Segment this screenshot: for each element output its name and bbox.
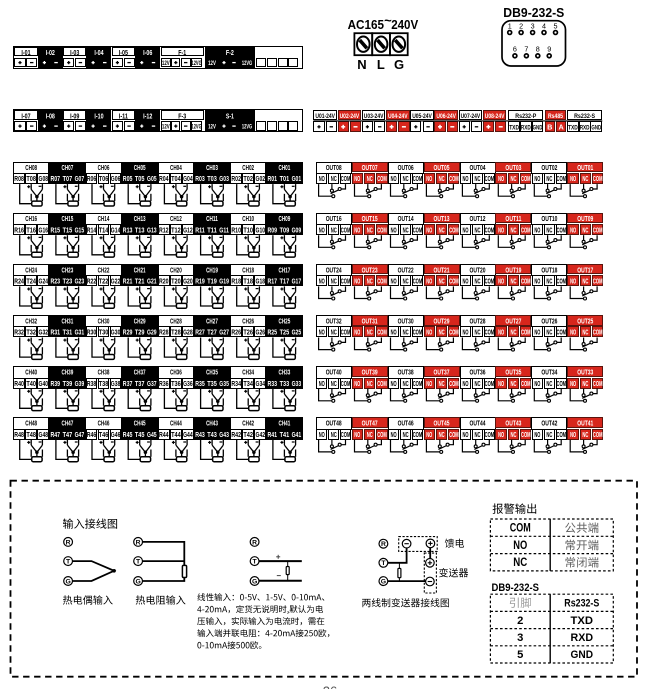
svg-text:R: R <box>381 541 386 548</box>
svg-text:RXD: RXD <box>571 632 594 644</box>
svg-text:3: 3 <box>517 632 523 644</box>
svg-text:5: 5 <box>554 21 558 30</box>
svg-text:R: R <box>252 539 257 546</box>
svg-text:TXD: TXD <box>571 615 594 627</box>
svg-text:R: R <box>136 539 141 546</box>
svg-text:G: G <box>381 579 386 586</box>
svg-text:DB9-232-S: DB9-232-S <box>503 5 564 20</box>
svg-text:G: G <box>65 578 70 585</box>
svg-text:AC165: AC165 <box>348 17 384 32</box>
svg-text:R: R <box>66 539 71 546</box>
svg-text:5: 5 <box>517 649 523 661</box>
svg-text:L: L <box>377 57 385 72</box>
svg-text:G: G <box>135 578 140 585</box>
svg-text:Rs232-S: Rs232-S <box>564 598 599 610</box>
svg-text:COM: COM <box>510 522 531 535</box>
svg-text:N: N <box>357 57 366 72</box>
svg-text:7: 7 <box>524 45 528 54</box>
svg-text:GND: GND <box>571 649 594 661</box>
svg-text:T: T <box>381 560 386 567</box>
svg-text:240V: 240V <box>391 17 418 32</box>
svg-text:1: 1 <box>508 21 512 30</box>
svg-text:NC: NC <box>513 556 528 569</box>
svg-text:G: G <box>394 57 404 72</box>
svg-text:9: 9 <box>547 45 551 54</box>
svg-text:DB9-232-S: DB9-232-S <box>492 582 540 594</box>
svg-text:~: ~ <box>384 13 392 28</box>
svg-text:2: 2 <box>519 21 523 30</box>
svg-text:G: G <box>252 578 257 585</box>
svg-text:8: 8 <box>536 45 540 54</box>
svg-text:4: 4 <box>542 21 546 30</box>
svg-text:2: 2 <box>517 615 523 627</box>
svg-text:6: 6 <box>513 45 517 54</box>
svg-text:NO: NO <box>513 539 527 552</box>
svg-text:T: T <box>66 559 71 566</box>
svg-text:3: 3 <box>531 21 535 30</box>
svg-text:T: T <box>253 559 258 566</box>
svg-text:T: T <box>136 559 141 566</box>
svg-text:26: 26 <box>323 684 337 689</box>
